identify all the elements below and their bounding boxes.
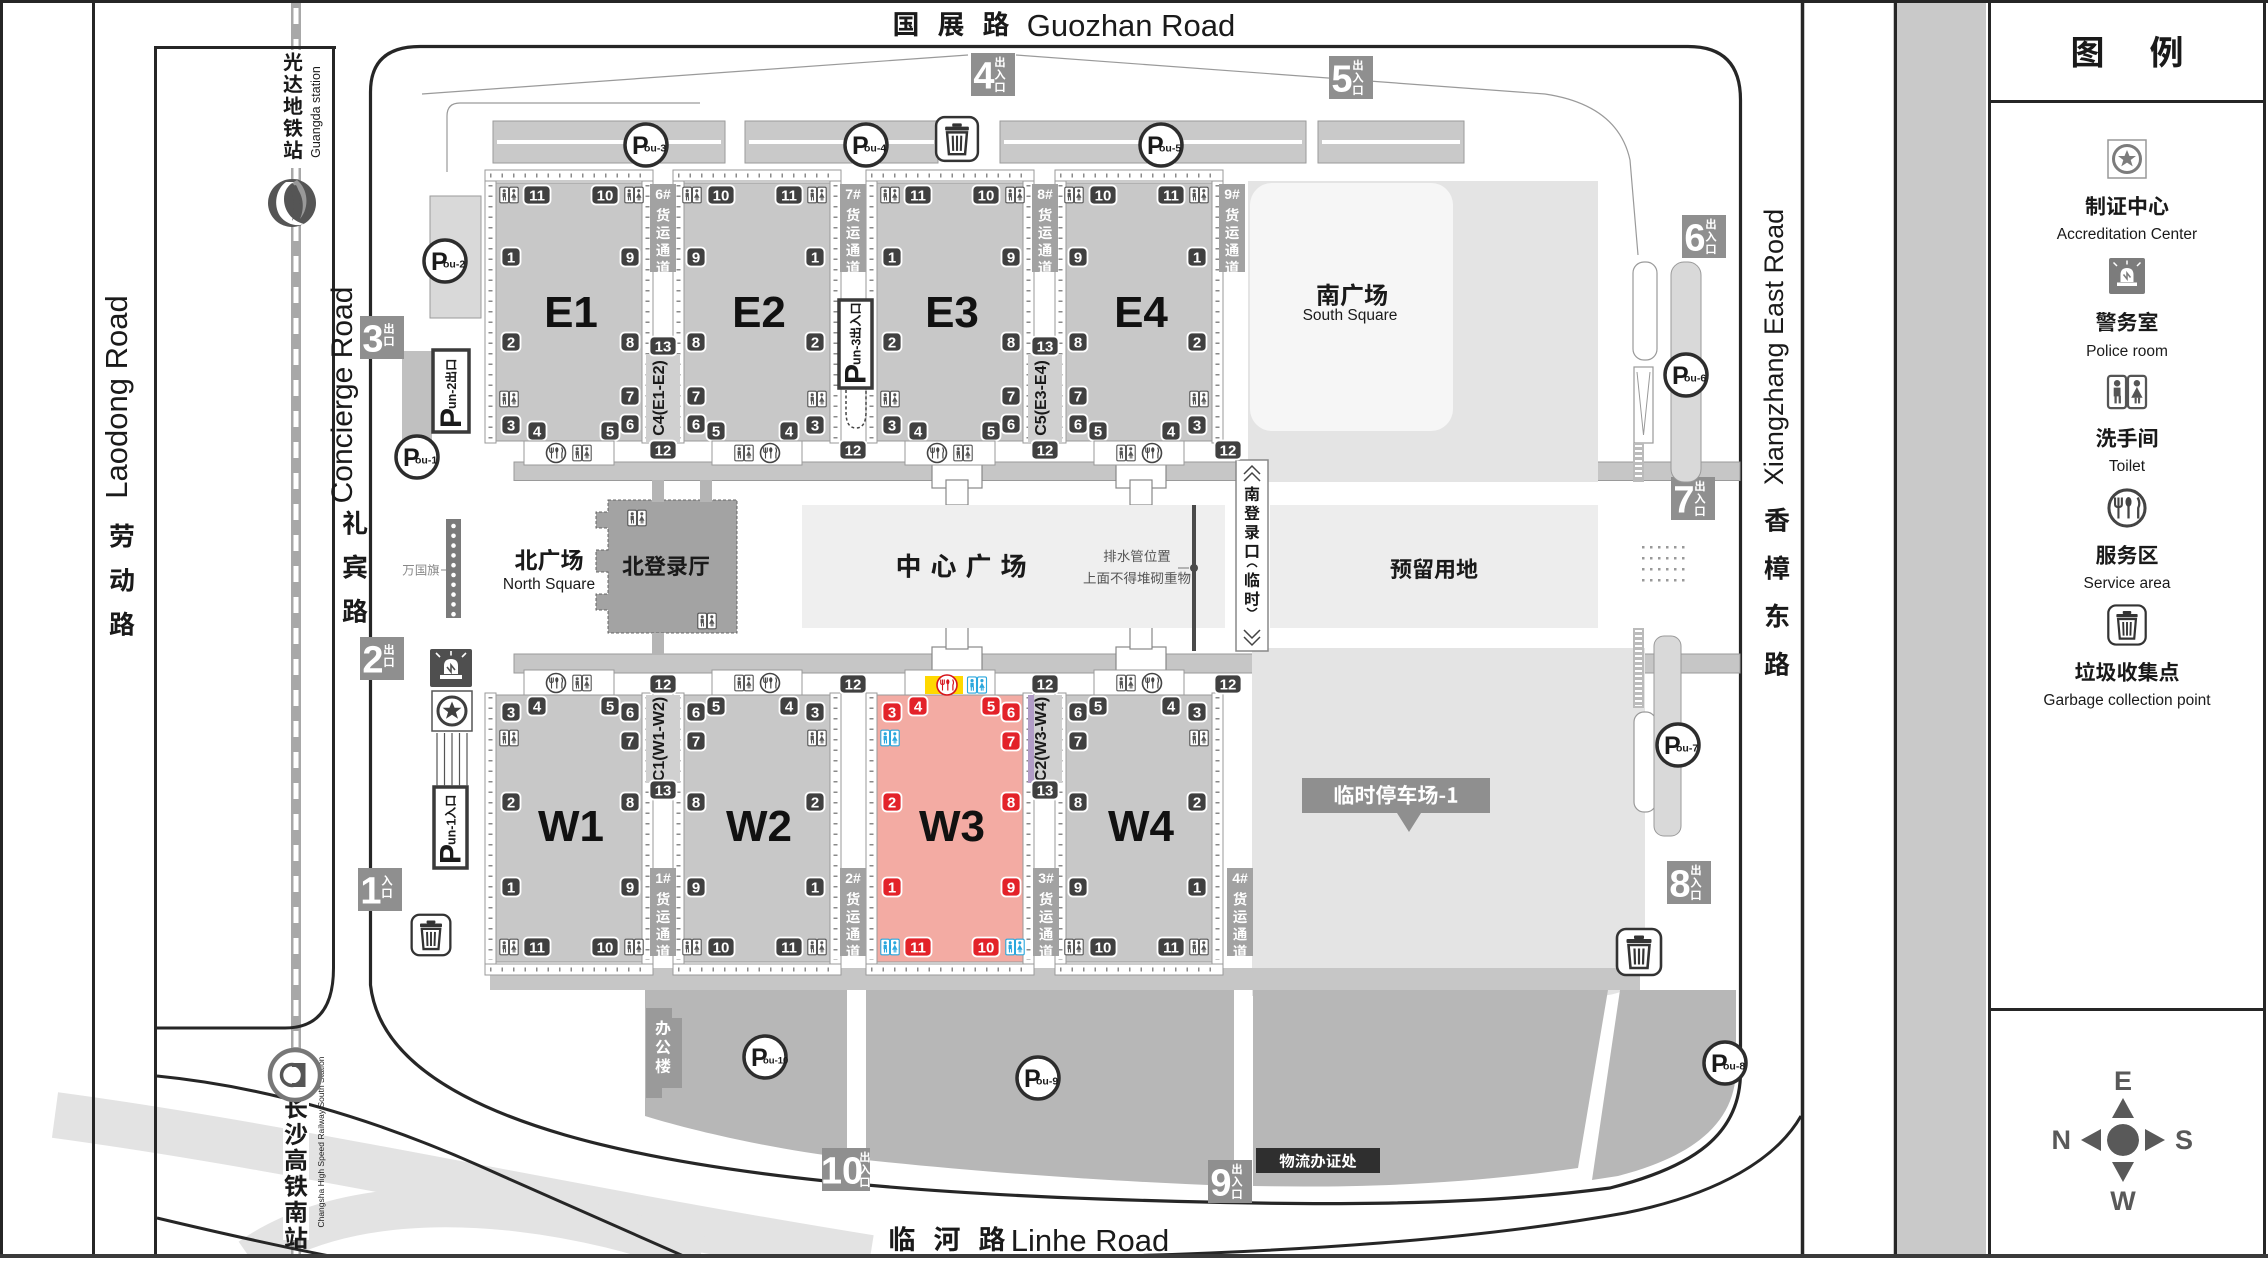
svg-text:12: 12: [1037, 677, 1054, 694]
svg-text:8: 8: [1669, 864, 1690, 906]
svg-text:3: 3: [362, 319, 383, 361]
svg-text:3: 3: [888, 705, 896, 722]
svg-text:6: 6: [626, 417, 634, 434]
svg-text:7#: 7#: [845, 186, 861, 202]
svg-text:4: 4: [533, 424, 542, 441]
svg-text:3: 3: [1193, 705, 1201, 722]
svg-text:North Square: North Square: [503, 576, 595, 593]
svg-text:ou-2: ou-2: [443, 259, 465, 271]
svg-text:5: 5: [987, 424, 995, 441]
svg-text:12: 12: [655, 677, 672, 694]
svg-text:6: 6: [692, 705, 700, 722]
svg-text:11: 11: [1163, 188, 1179, 205]
svg-text:ou-5: ou-5: [1159, 143, 1181, 155]
svg-text:11: 11: [781, 188, 797, 205]
svg-text:Accreditation Center: Accreditation Center: [2057, 226, 2197, 243]
svg-text:W4: W4: [1108, 802, 1175, 851]
svg-text:ou-8: ou-8: [1723, 1061, 1745, 1073]
svg-text:W1: W1: [538, 802, 604, 851]
svg-text:6: 6: [1007, 417, 1015, 434]
svg-text:P: P: [435, 408, 468, 428]
svg-text:W3: W3: [919, 802, 985, 851]
svg-text:3: 3: [507, 705, 515, 722]
svg-text:7: 7: [1673, 480, 1694, 522]
svg-text:ou-4: ou-4: [864, 143, 886, 155]
svg-text:E3: E3: [925, 288, 979, 337]
svg-text:13: 13: [1037, 339, 1054, 356]
svg-text:10: 10: [1095, 188, 1112, 205]
svg-text:9: 9: [1074, 250, 1082, 267]
svg-text:1: 1: [811, 880, 819, 897]
svg-text:7: 7: [1007, 389, 1015, 406]
svg-text:12: 12: [845, 443, 862, 460]
svg-text:2: 2: [888, 795, 896, 812]
svg-text:5: 5: [1094, 699, 1102, 716]
svg-text:6: 6: [1684, 218, 1705, 260]
svg-text:8: 8: [692, 335, 700, 352]
svg-text:2: 2: [507, 795, 515, 812]
svg-text:E2: E2: [732, 288, 786, 337]
svg-text:ou-9: ou-9: [1036, 1076, 1058, 1088]
svg-text:1: 1: [1193, 880, 1201, 897]
svg-text:8: 8: [626, 795, 634, 812]
svg-text:ou-10: ou-10: [763, 1056, 788, 1067]
svg-text:W2: W2: [726, 802, 792, 851]
svg-text:8: 8: [1074, 795, 1082, 812]
svg-text:11: 11: [1163, 940, 1179, 957]
svg-text:5: 5: [712, 699, 720, 716]
svg-text:6#: 6#: [655, 186, 671, 202]
svg-text:5: 5: [606, 424, 614, 441]
svg-text:4: 4: [914, 699, 923, 716]
svg-text:2: 2: [811, 335, 819, 352]
svg-text:1: 1: [360, 871, 381, 913]
svg-text:7: 7: [1074, 389, 1082, 406]
svg-text:12: 12: [845, 677, 862, 694]
svg-text:10: 10: [597, 940, 614, 957]
svg-text:un-2: un-2: [445, 383, 459, 409]
svg-text:ou-3: ou-3: [644, 143, 666, 155]
svg-text:9#: 9#: [1224, 186, 1240, 202]
svg-text:13: 13: [655, 339, 672, 356]
svg-text:N: N: [2052, 1125, 2072, 1155]
svg-text:ou-7: ou-7: [1676, 743, 1698, 755]
svg-text:4: 4: [914, 424, 923, 441]
svg-text:1: 1: [1193, 250, 1201, 267]
svg-text:8: 8: [1007, 795, 1015, 812]
svg-text:7: 7: [626, 389, 634, 406]
svg-text:Service area: Service area: [2083, 575, 2170, 592]
svg-text:2: 2: [1193, 795, 1201, 812]
svg-text:1: 1: [888, 250, 896, 267]
svg-text:10: 10: [978, 940, 995, 957]
svg-text:8: 8: [1007, 335, 1015, 352]
svg-text:2#: 2#: [845, 870, 861, 886]
svg-text:Xiangzhang East Road: Xiangzhang East Road: [1759, 209, 1789, 485]
svg-text:9: 9: [626, 880, 634, 897]
svg-text:5: 5: [1094, 424, 1102, 441]
svg-text:3: 3: [811, 418, 819, 435]
svg-text:Garbage collection point: Garbage collection point: [2043, 692, 2211, 709]
svg-text:12: 12: [655, 443, 672, 460]
svg-text:3: 3: [888, 418, 896, 435]
svg-text:C1(W1-W2): C1(W1-W2): [651, 697, 668, 781]
svg-text:1#: 1#: [655, 870, 671, 886]
svg-text:8#: 8#: [1037, 186, 1053, 202]
svg-text:6: 6: [1074, 705, 1082, 722]
svg-text:4: 4: [973, 56, 994, 98]
svg-text:un-1: un-1: [445, 819, 459, 845]
svg-text:1: 1: [811, 250, 819, 267]
svg-text:12: 12: [1220, 677, 1237, 694]
svg-text:11: 11: [910, 940, 926, 957]
svg-text:C2(W3-W4): C2(W3-W4): [1033, 697, 1050, 781]
svg-text:7: 7: [1007, 734, 1015, 751]
svg-text:4: 4: [533, 699, 542, 716]
svg-text:8: 8: [1074, 335, 1082, 352]
svg-text:E: E: [2114, 1066, 2132, 1096]
svg-text:11: 11: [910, 188, 926, 205]
svg-text:10: 10: [713, 940, 730, 957]
svg-text:2: 2: [362, 640, 383, 682]
svg-text:2: 2: [1193, 335, 1201, 352]
svg-text:10: 10: [1095, 940, 1112, 957]
svg-text:13: 13: [655, 783, 672, 800]
svg-text:Police room: Police room: [2086, 343, 2168, 360]
svg-text:9: 9: [1007, 250, 1015, 267]
svg-text:9: 9: [1074, 880, 1082, 897]
svg-text:12: 12: [1220, 443, 1237, 460]
svg-text:Toilet: Toilet: [2109, 458, 2146, 475]
svg-text:2: 2: [888, 335, 896, 352]
svg-text:11: 11: [529, 940, 545, 957]
svg-text:5: 5: [1331, 59, 1352, 101]
svg-text:7: 7: [626, 734, 634, 751]
svg-text:3: 3: [811, 705, 819, 722]
svg-text:5: 5: [712, 424, 720, 441]
svg-text:ou-6: ou-6: [1684, 373, 1706, 385]
svg-text:7: 7: [692, 389, 700, 406]
svg-text:10: 10: [713, 188, 730, 205]
svg-text:4: 4: [1167, 699, 1176, 716]
svg-text:Guozhan Road: Guozhan Road: [1027, 8, 1236, 43]
svg-text:5: 5: [606, 699, 614, 716]
svg-text:P: P: [840, 364, 873, 384]
svg-text:10: 10: [978, 188, 995, 205]
svg-text:7: 7: [1074, 734, 1082, 751]
svg-text:E4: E4: [1114, 288, 1168, 337]
svg-text:Concierge Road: Concierge Road: [326, 287, 359, 504]
svg-text:7: 7: [692, 734, 700, 751]
svg-text:5: 5: [987, 699, 995, 716]
svg-text:4: 4: [1167, 424, 1176, 441]
svg-text:9: 9: [1210, 1163, 1231, 1205]
svg-text:S: S: [2175, 1125, 2193, 1155]
svg-text:6: 6: [1007, 705, 1015, 722]
svg-text:12: 12: [1037, 443, 1054, 460]
svg-text:3#: 3#: [1038, 870, 1054, 886]
svg-text:2: 2: [811, 795, 819, 812]
svg-text:3: 3: [507, 418, 515, 435]
svg-text:9: 9: [692, 250, 700, 267]
svg-text:8: 8: [626, 335, 634, 352]
svg-text:9: 9: [692, 880, 700, 897]
svg-text:1: 1: [507, 880, 515, 897]
svg-text:Guangda station: Guangda station: [309, 66, 323, 158]
svg-text:10: 10: [821, 1151, 863, 1193]
svg-text:4#: 4#: [1232, 870, 1248, 886]
svg-text:P: P: [435, 844, 468, 864]
svg-text:3: 3: [1193, 418, 1201, 435]
svg-text:un-3: un-3: [850, 339, 864, 365]
svg-text:C4(E1-E2): C4(E1-E2): [651, 360, 668, 436]
svg-text:South Square: South Square: [1303, 307, 1398, 324]
svg-text:9: 9: [1007, 880, 1015, 897]
svg-text:6: 6: [692, 417, 700, 434]
svg-text:C5(E3-E4): C5(E3-E4): [1033, 360, 1050, 436]
svg-text:13: 13: [1037, 783, 1054, 800]
svg-text:Laodong Road: Laodong Road: [99, 295, 134, 498]
svg-text:6: 6: [626, 705, 634, 722]
svg-text:1: 1: [888, 880, 896, 897]
svg-text:9: 9: [626, 250, 634, 267]
svg-text:ou-1: ou-1: [415, 455, 437, 467]
svg-text:1: 1: [507, 250, 515, 267]
svg-text:11: 11: [781, 940, 797, 957]
svg-text:4: 4: [785, 699, 794, 716]
svg-text:4: 4: [785, 424, 794, 441]
svg-text:E1: E1: [544, 288, 598, 337]
svg-text:6: 6: [1074, 417, 1082, 434]
svg-text:2: 2: [507, 335, 515, 352]
svg-text:8: 8: [692, 795, 700, 812]
svg-text:W: W: [2110, 1186, 2136, 1216]
svg-text:Linhe Road: Linhe Road: [1011, 1223, 1170, 1258]
svg-text:10: 10: [597, 188, 614, 205]
svg-text:11: 11: [529, 188, 545, 205]
